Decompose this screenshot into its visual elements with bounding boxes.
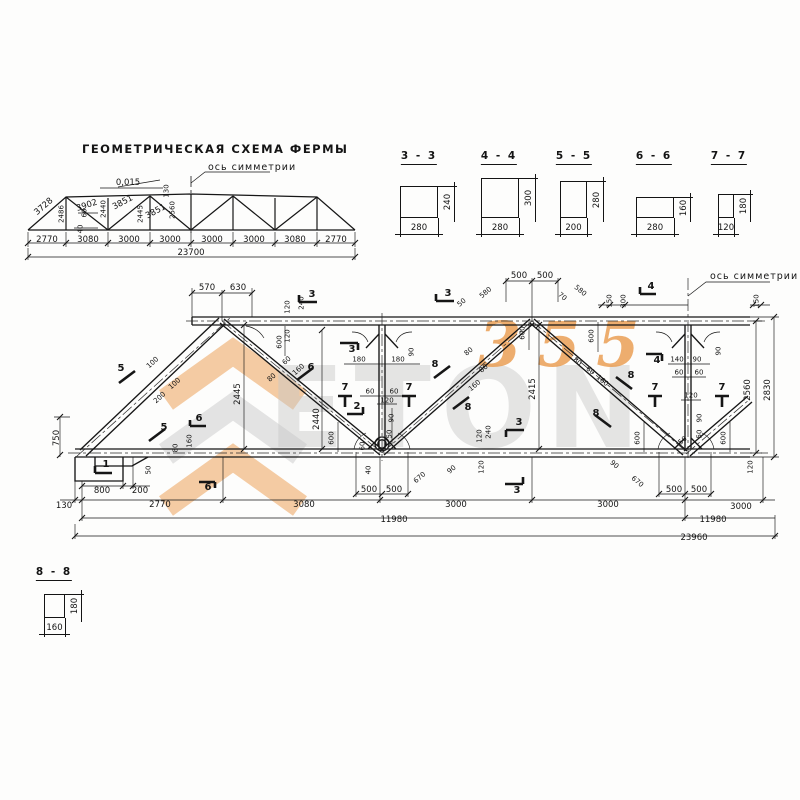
dim-label: 500 bbox=[537, 272, 553, 281]
section-mark-numeral: 3 bbox=[445, 289, 452, 299]
section-ext-line bbox=[519, 178, 538, 179]
dim-label: 600 bbox=[329, 431, 336, 444]
dim-label: 40 bbox=[366, 466, 373, 475]
dim-label: 200 bbox=[132, 487, 148, 496]
dim-label: 2770 bbox=[325, 236, 347, 245]
section-mark-numeral: 1 bbox=[103, 460, 110, 470]
section-height-label: 160 bbox=[679, 199, 689, 215]
section-ext-line bbox=[519, 218, 520, 237]
dim-label: 2445 bbox=[234, 383, 243, 405]
section-mark-numeral: 3 bbox=[514, 486, 521, 496]
section-width-label: 160 bbox=[46, 623, 62, 633]
dim-label: 160 bbox=[468, 379, 483, 393]
dim-label: 50 bbox=[677, 435, 688, 446]
dim-label: 90 bbox=[693, 357, 702, 364]
section-mark-numeral: 2 bbox=[354, 402, 361, 412]
dim-label: 90 bbox=[389, 414, 396, 423]
section-ext-line bbox=[674, 197, 693, 198]
section-height-dim-line bbox=[535, 174, 536, 222]
dim-label: 2440 bbox=[313, 408, 322, 430]
dim-label: 3080 bbox=[77, 236, 99, 245]
dim-label: 11980 bbox=[380, 516, 407, 525]
dim-label: 800 bbox=[94, 487, 110, 496]
dim-label: 120 bbox=[479, 460, 486, 473]
dim-label: 3080 bbox=[293, 501, 315, 510]
dim-label: 120 bbox=[684, 393, 697, 400]
section-mark-numeral: 4 bbox=[654, 356, 661, 366]
section-ext-line bbox=[560, 218, 561, 237]
section-outline bbox=[718, 194, 734, 218]
dim-label: 80 bbox=[173, 444, 180, 453]
dim-label: 180 bbox=[352, 357, 365, 364]
dim-label: 3000 bbox=[445, 501, 467, 510]
dim-label: 120 bbox=[285, 329, 292, 342]
dim-label: 90 bbox=[608, 459, 619, 470]
section-ext-line bbox=[65, 618, 66, 637]
section-outline bbox=[481, 178, 519, 218]
dim-label: 500 bbox=[691, 486, 707, 495]
dim-label: 3000 bbox=[597, 501, 619, 510]
dim-label: 60 bbox=[584, 365, 595, 376]
dim-label: 160 bbox=[595, 374, 610, 388]
section-ext-line bbox=[674, 218, 675, 237]
dim-label: 3080 bbox=[284, 236, 306, 245]
dim-label: 570 bbox=[199, 284, 215, 293]
dim-label: 300 bbox=[621, 294, 628, 307]
dim-label: 80 bbox=[478, 363, 489, 374]
dim-label: 3000 bbox=[730, 503, 752, 512]
dim-label: 240 bbox=[299, 296, 306, 309]
section-outline bbox=[636, 197, 674, 218]
dim-label: 2830 bbox=[764, 379, 773, 401]
dim-label: 600 bbox=[520, 326, 527, 339]
dim-label: 90 bbox=[697, 414, 704, 423]
section-height-label: 300 bbox=[524, 190, 534, 206]
dim-label: 3000 bbox=[118, 236, 140, 245]
dim-label: 50 bbox=[387, 430, 394, 439]
section-outline bbox=[400, 186, 438, 218]
dim-label: 670 bbox=[630, 475, 645, 489]
section-ext-line bbox=[587, 181, 606, 182]
dim-label: 23960 bbox=[680, 534, 707, 543]
section-mark-numeral: 8 bbox=[465, 403, 472, 413]
section-mark-numeral: 8 bbox=[432, 360, 439, 370]
section-height-dim-line bbox=[603, 177, 604, 222]
section-ext-line bbox=[636, 218, 637, 237]
section-mark-numeral: 3 bbox=[516, 418, 523, 428]
dim-label: 60 bbox=[360, 442, 367, 451]
section-title: 8 - 8 bbox=[36, 566, 72, 581]
section-mark-numeral: 3 bbox=[309, 290, 316, 300]
section-height-dim-line bbox=[454, 182, 455, 222]
dim-label: 500 bbox=[511, 272, 527, 281]
dim-label: 70 bbox=[556, 291, 567, 302]
section-mark-numeral: 6 bbox=[205, 483, 212, 493]
section-title: 6 - 6 bbox=[636, 150, 672, 165]
dim-label: 80 bbox=[463, 346, 474, 357]
section-mark-numeral: 3 bbox=[349, 345, 356, 355]
dim-label: 90 bbox=[409, 348, 416, 357]
section-mark-numeral: 7 bbox=[652, 383, 659, 393]
dim-label: 80 bbox=[266, 372, 277, 383]
dim-label: 40 bbox=[78, 225, 85, 234]
dim-label: 2415 bbox=[529, 378, 538, 400]
section-height-label: 280 bbox=[592, 191, 602, 207]
section-ext-line bbox=[44, 618, 45, 637]
dim-label: 130 bbox=[56, 502, 72, 511]
section-height-label: 240 bbox=[443, 194, 453, 210]
dim-label: 150 bbox=[754, 294, 761, 307]
dim-label: 3728 bbox=[33, 197, 55, 218]
dim-label: 50 bbox=[456, 297, 467, 308]
dim-label: 90 bbox=[716, 347, 723, 356]
dim-label: 120 bbox=[748, 460, 755, 473]
section-mark-numeral: 8 bbox=[628, 371, 635, 381]
dimension-labels-layer: 372824863902244038512445385125600,015130… bbox=[0, 0, 800, 800]
section-ext-line bbox=[65, 594, 84, 595]
dim-label: 50 bbox=[146, 466, 153, 475]
dim-label: 120 bbox=[285, 300, 292, 313]
truss-drawing-sheet: ETON 355 bbox=[0, 0, 800, 800]
dim-label: 3000 bbox=[201, 236, 223, 245]
section-mark-numeral: 4 bbox=[648, 282, 655, 292]
dim-label: 140 bbox=[670, 357, 683, 364]
section-width-label: 120 bbox=[718, 223, 734, 233]
dim-label: 630 bbox=[230, 284, 246, 293]
dim-label: 60 bbox=[695, 370, 704, 377]
dim-label: 500 bbox=[386, 486, 402, 495]
dim-label: 50 bbox=[697, 430, 704, 439]
dim-label: 3000 bbox=[243, 236, 265, 245]
dim-label: 60 bbox=[366, 389, 375, 396]
dim-label: 130 bbox=[164, 184, 171, 197]
section-mark-numeral: 7 bbox=[719, 383, 726, 393]
dim-label: 2560 bbox=[170, 201, 177, 219]
dim-label: 100 bbox=[146, 356, 161, 370]
dim-label: 600 bbox=[721, 431, 728, 444]
dim-label: 0,015 bbox=[116, 179, 140, 188]
dim-label: 23700 bbox=[177, 249, 204, 258]
dim-label: 160 bbox=[187, 434, 194, 447]
dim-label: 3851 bbox=[144, 203, 167, 221]
section-mark-numeral: 8 bbox=[593, 409, 600, 419]
dim-label: 600 bbox=[277, 335, 284, 348]
section-width-dim-line bbox=[713, 234, 739, 235]
section-mark-numeral: 5 bbox=[118, 364, 125, 374]
dim-label: 60 bbox=[281, 355, 292, 366]
section-mark-numeral: 6 bbox=[196, 414, 203, 424]
dim-label: 600 bbox=[635, 431, 642, 444]
section-width-label: 280 bbox=[647, 223, 663, 233]
dim-label: 11980 bbox=[699, 516, 726, 525]
dim-label: 3000 bbox=[159, 236, 181, 245]
dim-label: 670 bbox=[413, 471, 428, 485]
section-ext-line bbox=[438, 186, 457, 187]
dim-label: 600 bbox=[589, 329, 596, 342]
dim-label: 160 bbox=[292, 363, 307, 377]
dim-label: 120 bbox=[380, 398, 393, 405]
dim-label: 180 bbox=[391, 357, 404, 364]
dim-label: 2560 bbox=[744, 379, 753, 401]
dim-label: 150 bbox=[607, 294, 614, 307]
dim-label: 580 bbox=[573, 284, 588, 298]
dim-label: 2440 bbox=[101, 200, 108, 218]
section-width-dim-line bbox=[395, 234, 443, 235]
dim-label: 200 bbox=[153, 391, 168, 405]
dim-label: 3851 bbox=[111, 194, 134, 212]
section-width-dim-line bbox=[631, 234, 679, 235]
dim-label: 120 bbox=[477, 429, 484, 442]
dim-label: 90 bbox=[446, 464, 457, 475]
dim-label: 60 bbox=[675, 370, 684, 377]
dim-label: 2770 bbox=[36, 236, 58, 245]
dim-label: 100 bbox=[168, 377, 183, 391]
dim-label: 2770 bbox=[149, 501, 171, 510]
section-outline bbox=[44, 594, 65, 618]
dim-label: 500 bbox=[361, 486, 377, 495]
dim-label: 580 bbox=[479, 286, 494, 300]
section-ext-line bbox=[400, 218, 401, 237]
dim-label: 500 bbox=[666, 486, 682, 495]
dim-label: 2445 bbox=[138, 205, 145, 223]
section-outline bbox=[560, 181, 587, 218]
section-title: 5 - 5 bbox=[556, 150, 592, 165]
dim-label: 60 bbox=[82, 209, 89, 218]
section-ext-line bbox=[438, 218, 439, 237]
section-title: 3 - 3 bbox=[401, 150, 437, 165]
section-ext-line bbox=[734, 194, 753, 195]
section-mark-numeral: 7 bbox=[406, 383, 413, 393]
dim-label: 240 bbox=[486, 425, 493, 438]
section-mark-numeral: 5 bbox=[161, 423, 168, 433]
section-height-label: 180 bbox=[739, 198, 749, 214]
dim-label: 60 bbox=[390, 389, 399, 396]
section-title: 4 - 4 bbox=[481, 150, 517, 165]
section-ext-line bbox=[734, 218, 735, 237]
dim-label: 750 bbox=[53, 430, 62, 446]
section-width-label: 200 bbox=[565, 223, 581, 233]
section-height-label: 180 bbox=[70, 598, 80, 614]
section-width-label: 280 bbox=[492, 223, 508, 233]
dim-label: 2486 bbox=[59, 205, 66, 223]
dim-label: 80 bbox=[571, 356, 582, 367]
section-title: 7 - 7 bbox=[711, 150, 747, 165]
section-width-dim-line bbox=[476, 234, 524, 235]
section-ext-line bbox=[481, 218, 482, 237]
section-ext-line bbox=[587, 218, 588, 237]
section-mark-numeral: 6 bbox=[308, 363, 315, 373]
section-width-label: 280 bbox=[411, 223, 427, 233]
section-mark-numeral: 7 bbox=[342, 383, 349, 393]
